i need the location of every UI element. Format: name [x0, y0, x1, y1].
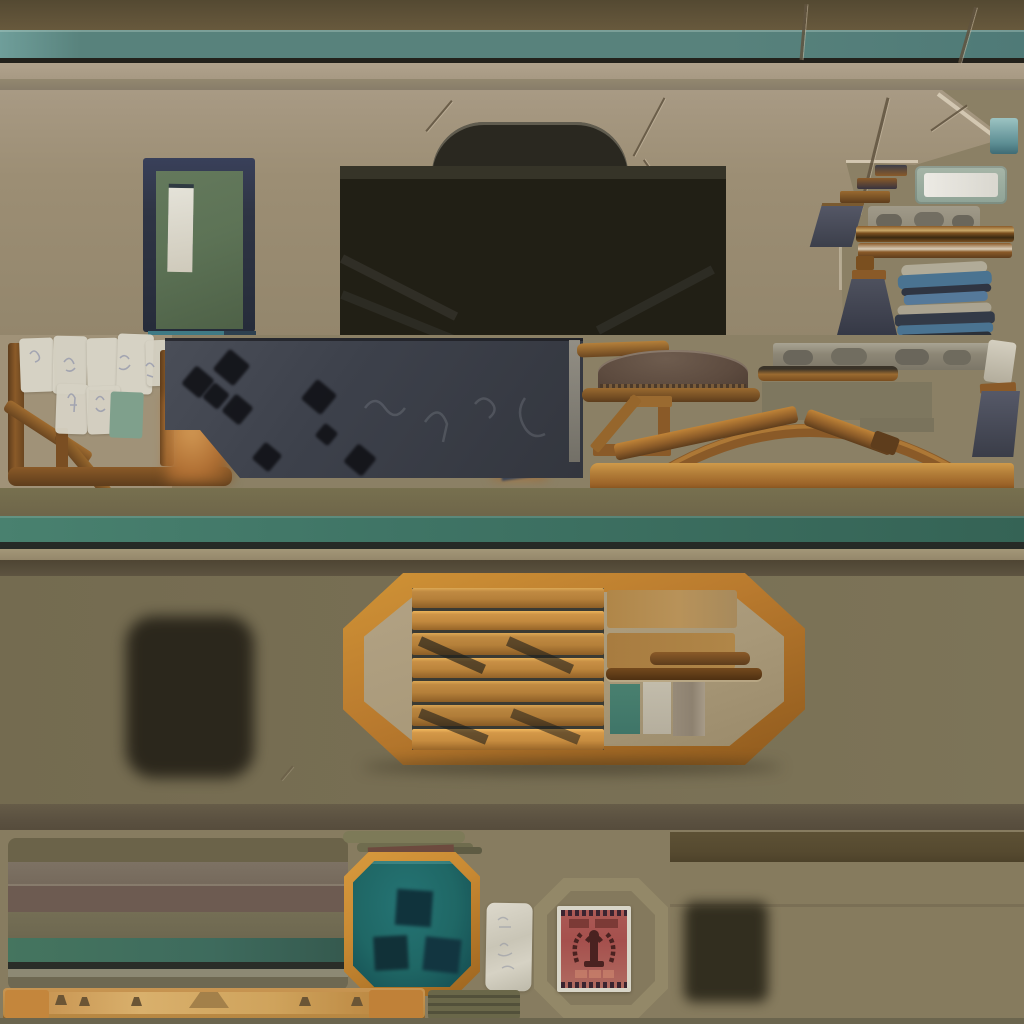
bottom-edge-strip — [0, 1018, 1024, 1024]
cloth-stack-sprite — [897, 261, 993, 308]
hatch-hole — [373, 935, 409, 971]
step-bar-sprite — [840, 191, 890, 203]
plank — [412, 681, 604, 702]
blue-tile-sprite — [990, 118, 1018, 154]
poster-art — [561, 910, 627, 988]
top-tan-light-band — [0, 63, 1024, 80]
stone-blob — [831, 348, 867, 365]
red-poster — [561, 910, 627, 988]
right-panel-top-band — [670, 832, 1024, 862]
sign-blank-face — [924, 173, 998, 197]
crate-stick — [650, 652, 750, 665]
plank — [412, 588, 604, 608]
crate-drop-shadow — [362, 760, 782, 774]
stone-blob — [783, 350, 813, 365]
hatch-hole — [395, 889, 433, 927]
opening-lintel — [340, 166, 726, 179]
stripe-lighttan — [8, 969, 348, 977]
wainscot-olive-band — [0, 488, 1024, 518]
swatch-teal — [610, 684, 640, 734]
top-teal-stripe — [0, 30, 1024, 60]
step-bar-sprite — [875, 165, 907, 176]
step-bar-sprite — [857, 178, 897, 189]
broken-edge-highlight — [846, 160, 918, 163]
door-window — [167, 188, 193, 272]
wainscot-teal-stripe — [0, 516, 1024, 544]
long-beam-sprite — [856, 226, 1014, 242]
hatch-hole — [422, 936, 461, 974]
plank — [412, 611, 604, 630]
stripe-olivegray — [8, 912, 348, 938]
plank-stack — [412, 588, 604, 750]
paper-scribbles — [492, 912, 528, 982]
peg-rail — [3, 988, 425, 1022]
peg-rail-end-block — [5, 990, 49, 1019]
crate-tan-block — [607, 590, 737, 628]
opening-beam-shadow — [596, 265, 715, 334]
stripe-graybrown — [8, 862, 348, 886]
garage-opening — [340, 166, 726, 336]
chalk-scribbles — [355, 378, 575, 468]
opening-beam-shadow — [340, 254, 458, 320]
stripe-olive — [8, 838, 348, 862]
olive-slat-bar — [428, 990, 520, 1020]
stone-blob — [895, 349, 929, 365]
shadow-blob-decal — [126, 616, 254, 778]
striped-panel-tile — [8, 838, 348, 990]
stripe-teal — [8, 938, 348, 962]
stripe-mauve — [8, 886, 348, 912]
texture-atlas-canvas — [0, 0, 1024, 1024]
stone-blob — [943, 350, 971, 365]
navy-funnel-sprite — [852, 270, 886, 280]
olive-strip-sprite — [343, 831, 465, 843]
wood-stick — [758, 366, 898, 381]
note-scribbles — [20, 336, 170, 436]
plank — [412, 658, 604, 678]
beam-end-tab — [856, 256, 874, 270]
peg-rail-right-section — [369, 990, 423, 1019]
swatch-taupe — [673, 682, 705, 736]
long-beam-sprite — [858, 243, 1012, 258]
crate-stick-thin — [606, 668, 762, 680]
baseboard-band — [0, 804, 1024, 832]
shadow-square-decal — [684, 902, 768, 1002]
swatch-gray — [643, 682, 671, 734]
white-stone — [983, 339, 1017, 384]
top-beam-dark — [0, 0, 1024, 34]
